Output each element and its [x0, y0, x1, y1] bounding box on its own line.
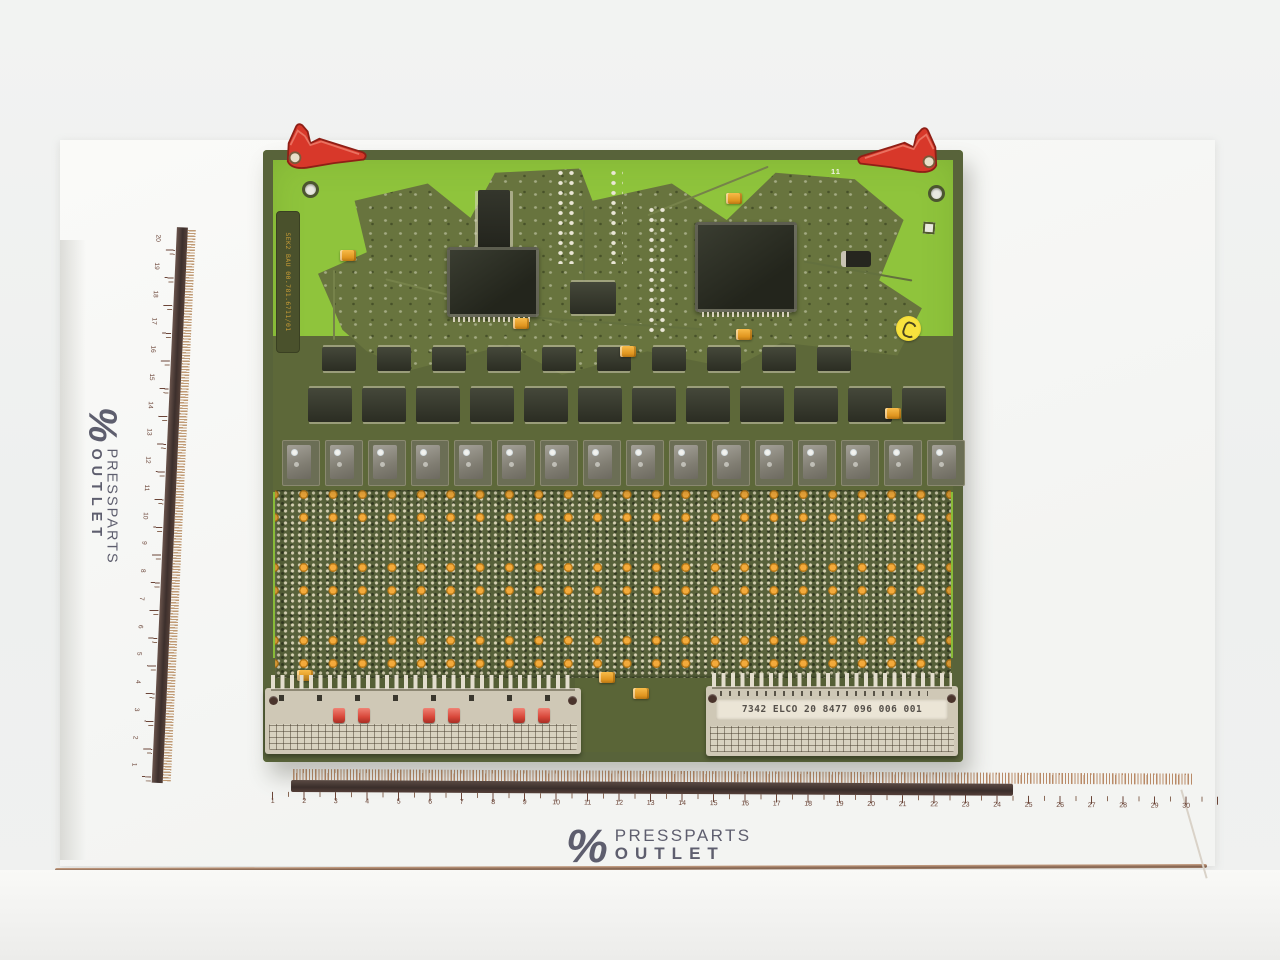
soic-ic-chip [362, 388, 406, 422]
connector-coding-marks [279, 695, 567, 701]
soic-ic-chip [524, 388, 568, 422]
driver-ic-chip [712, 440, 750, 486]
soic-ic-chip [817, 347, 851, 371]
mounting-hole [931, 188, 942, 199]
soic-ic-chip [322, 347, 356, 371]
tantalum-capacitor [736, 329, 752, 340]
tantalum-capacitor [726, 193, 742, 204]
table-surface [0, 870, 1280, 960]
soic-ic-chip [707, 347, 741, 371]
driver-ic-chip [411, 440, 449, 486]
connector-key [448, 708, 460, 723]
soic-ic-chip [570, 282, 616, 314]
connector-key [538, 708, 550, 723]
driver-ic-chip [841, 440, 879, 486]
connector-key [513, 708, 525, 723]
driver-ic-chip [454, 440, 492, 486]
connector-screw [568, 696, 577, 705]
driver-ic-chip [282, 440, 320, 486]
connector-key [358, 708, 370, 723]
soic-ic-chip [487, 347, 521, 371]
dip-ic-chip [478, 190, 510, 248]
sheet-shadow [60, 240, 86, 860]
product-photo: 2019181716151413121110987654321 12345678… [0, 0, 1280, 960]
soic-ic-chip [652, 347, 686, 371]
soic-ic-chip [686, 388, 730, 422]
tantalum-capacitor [620, 346, 636, 357]
soic-ic-chip [794, 388, 838, 422]
soic-row-large [308, 388, 946, 422]
soic-ic-chip [542, 347, 576, 371]
driver-ic-row [282, 440, 965, 486]
connector-solder-row [720, 691, 928, 696]
soic-ic-chip [470, 388, 514, 422]
connector-label: 7342 ELCO 20 8477 096 006 001 [716, 699, 948, 720]
connector-socket-grid [710, 726, 954, 752]
driver-ic-chip [669, 440, 707, 486]
soic-ic-chip [416, 388, 460, 422]
driver-ic-chip [325, 440, 363, 486]
driver-ic-chip [755, 440, 793, 486]
connector-key [333, 708, 345, 723]
soic-row-small [322, 347, 851, 371]
qc-sticker [896, 316, 921, 341]
driver-ic-chip [368, 440, 406, 486]
driver-ic-chip [626, 440, 664, 486]
solder-pad-column [608, 168, 623, 264]
solder-pad-column [646, 205, 666, 335]
qfp-ic-chip [447, 247, 539, 317]
silk-mark: 11 [831, 167, 841, 176]
soic-ic-chip [308, 388, 352, 422]
soic-ic-chip [902, 388, 946, 422]
board-id-label: SEK2 BAU 00.781.6711/01 [275, 212, 299, 352]
pcb-trace-region [318, 162, 928, 377]
pcb-trace [333, 270, 335, 340]
soic-ic-chip [432, 347, 466, 371]
tantalum-capacitor [885, 408, 901, 419]
mounting-hole [305, 184, 316, 195]
tantalum-capacitor [513, 318, 529, 329]
soic-ic-chip [762, 347, 796, 371]
square-pad [923, 222, 936, 235]
tantalum-capacitor [340, 250, 356, 261]
connector-screw [947, 694, 956, 703]
solder-pad-column [555, 168, 579, 264]
connector-screw [708, 694, 717, 703]
soic-ic-chip [740, 388, 784, 422]
connector-pins [712, 673, 952, 689]
edge-connector-left [265, 688, 581, 754]
ejector-lever-left [277, 118, 369, 174]
tantalum-capacitor [633, 688, 649, 699]
diode-component [841, 251, 871, 267]
soic-ic-chip [578, 388, 622, 422]
edge-connector-right: 7342 ELCO 20 8477 096 006 001 [706, 686, 958, 756]
soic-ic-chip [377, 347, 411, 371]
driver-ic-chip [798, 440, 836, 486]
connector-pins [271, 675, 575, 691]
qfp-ic-chip [695, 222, 797, 312]
driver-ic-chip [497, 440, 535, 486]
connector-key [423, 708, 435, 723]
tantalum-capacitor [599, 672, 615, 683]
connector-socket-grid [269, 724, 577, 750]
component-array-field [275, 490, 951, 678]
ejector-lever-right [855, 122, 947, 178]
driver-ic-chip [884, 440, 922, 486]
driver-ic-chip [927, 440, 965, 486]
driver-ic-chip [540, 440, 578, 486]
soic-ic-chip [632, 388, 676, 422]
pcb-board: 11 SEK2 BAU 00.781.6711/01 [263, 150, 963, 762]
connector-screw [269, 696, 278, 705]
driver-ic-chip [583, 440, 621, 486]
